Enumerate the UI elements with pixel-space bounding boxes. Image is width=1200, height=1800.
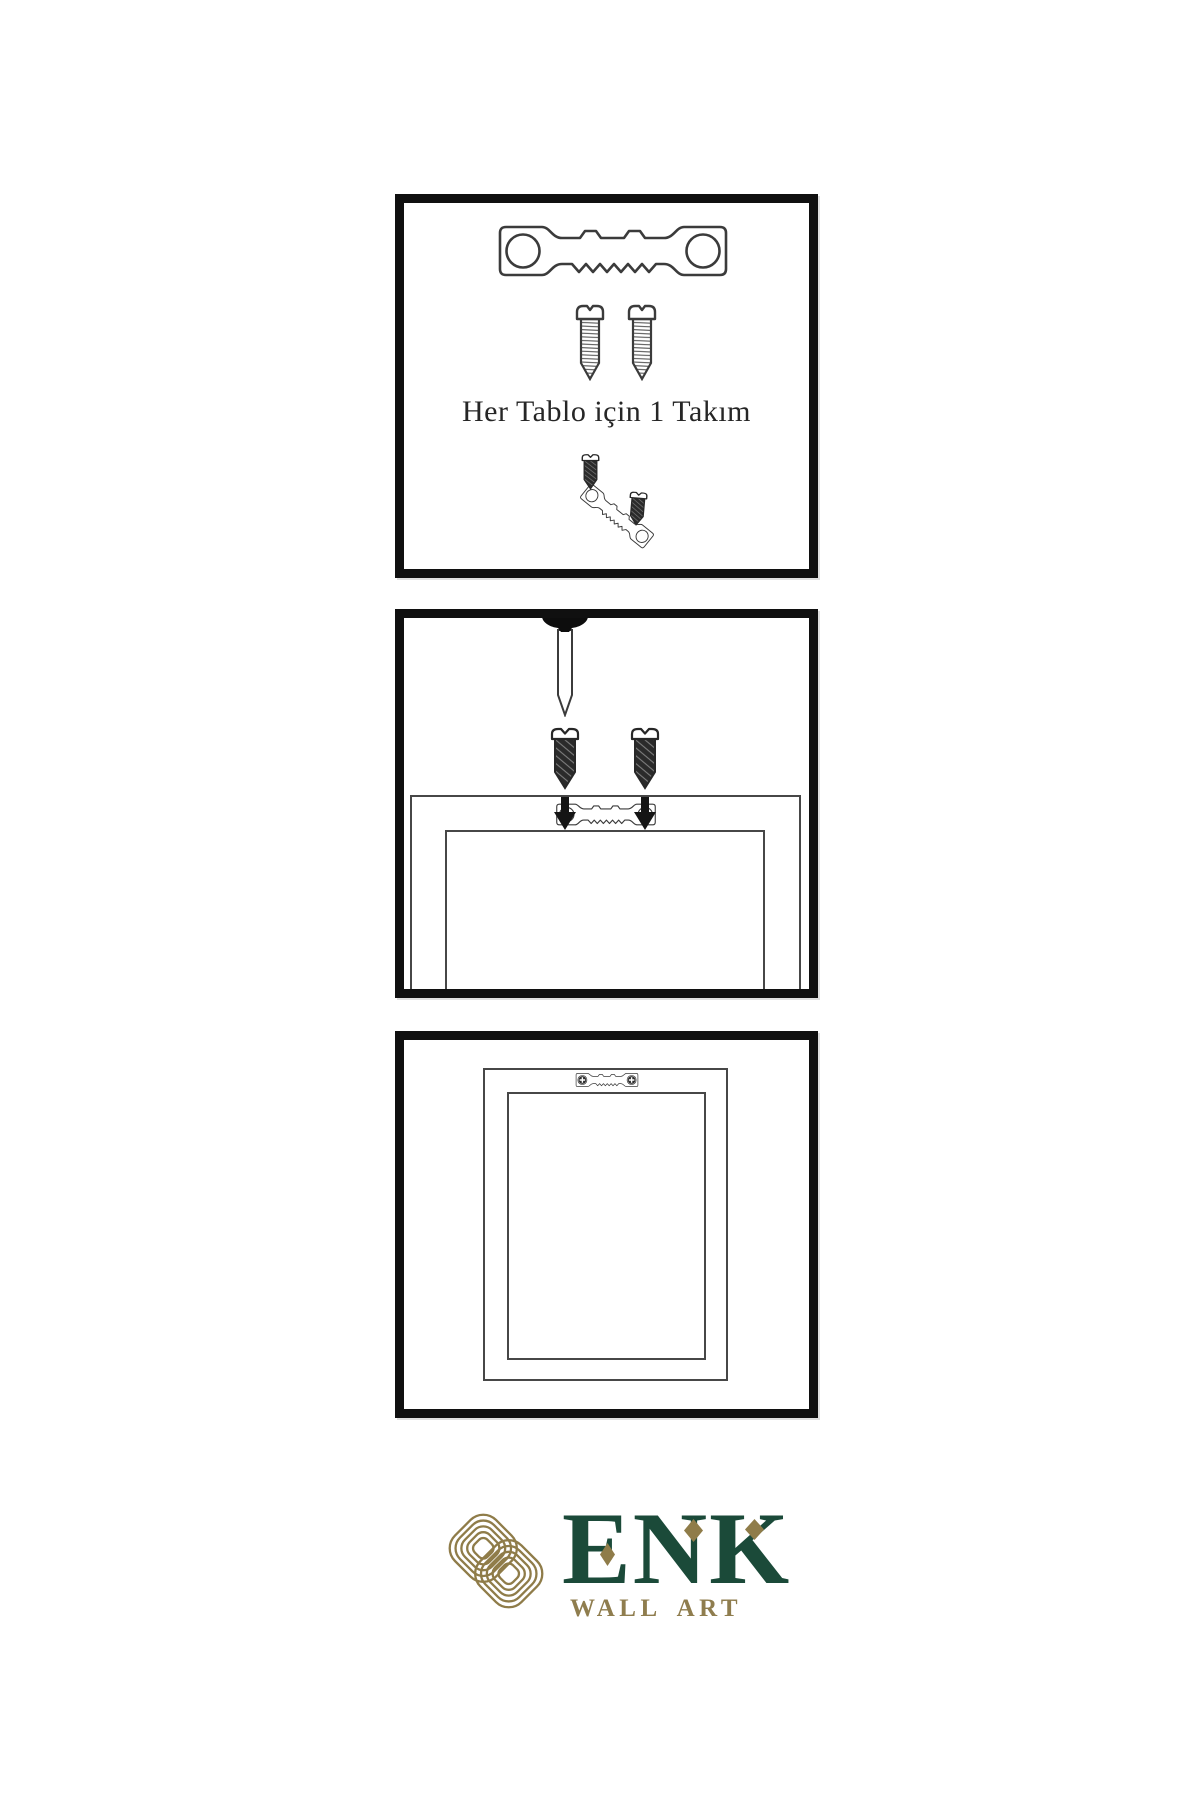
panel-hardware-kit: Her Tablo için 1 Takım: [395, 194, 818, 578]
brand-knot-icon: [438, 1497, 554, 1625]
panel-attach-hanger: [395, 609, 818, 998]
dark-screw-icon: [630, 726, 660, 790]
frame-inner-edge: [507, 1092, 706, 1360]
mounted-sawtooth-hanger-icon: [575, 1072, 639, 1088]
frame-inner-edge: [445, 830, 765, 989]
phillips-screw-head-icon: [628, 1076, 636, 1084]
brand-tagline: WALL ART: [570, 1596, 742, 1621]
dark-screw-icon: [627, 490, 649, 527]
phillips-screw-head-icon: [579, 1076, 587, 1084]
sawtooth-hanger-icon: [496, 222, 730, 280]
dark-screw-icon: [581, 453, 600, 490]
screw-icon: [575, 303, 605, 381]
kit-caption: Her Tablo için 1 Takım: [404, 395, 809, 429]
instruction-sheet: Her Tablo için 1 Takım: [0, 0, 1200, 1800]
panel-frame-mounted: [395, 1031, 818, 1418]
down-arrow-icon: [634, 797, 656, 830]
dark-screw-icon: [550, 726, 580, 790]
screw-icon: [627, 303, 657, 381]
brand-name: ENK: [562, 1498, 791, 1601]
knot-lobe: [468, 1533, 550, 1615]
down-arrow-icon: [554, 797, 576, 830]
knot-lobe: [442, 1507, 524, 1589]
nail-icon: [542, 618, 588, 717]
